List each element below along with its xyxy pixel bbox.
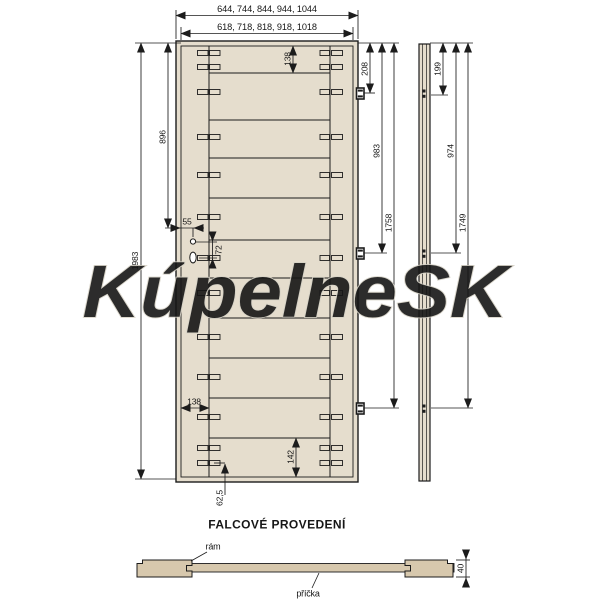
tenon-slot — [198, 135, 209, 140]
tenon-slot — [210, 375, 221, 380]
dim-label-inner-widths: 618, 718, 818, 918, 1018 — [217, 22, 317, 32]
tenon-slot — [210, 446, 221, 451]
tenon-slot — [198, 461, 209, 466]
dim-label-bottom-rail: 142 — [286, 450, 296, 464]
tenon-slot — [210, 173, 221, 178]
tenon-slot — [320, 65, 330, 70]
keyhole-icon — [190, 239, 195, 244]
dim-label-lock-height: 896 — [158, 130, 168, 144]
tenon-slot — [198, 335, 209, 340]
frame-block-right — [405, 560, 453, 577]
frame-block-left — [137, 560, 192, 577]
frame-label: rám — [206, 542, 221, 552]
tenon-slot — [332, 65, 343, 70]
dim-label-bottom-slot: 62,5 — [215, 490, 225, 506]
hinge-dot — [422, 90, 425, 93]
tenon-slot — [332, 461, 343, 466]
dim-label-outer-widths: 644, 744, 844, 944, 1044 — [217, 4, 317, 14]
tenon-slot — [332, 90, 343, 95]
tenon-slot — [320, 135, 330, 140]
hinge-pin — [358, 90, 363, 92]
tenon-slot — [320, 446, 330, 451]
tenon-slot — [210, 51, 221, 56]
dim-label-hinge3: 1758 — [384, 213, 394, 232]
tenon-slot — [210, 135, 221, 140]
dim-label-thickness: 40 — [456, 564, 466, 574]
tenon-slot — [332, 375, 343, 380]
dim-label-side-hinge2: 974 — [446, 144, 456, 158]
tenon-slot — [320, 461, 330, 466]
dim-label-top-rail: 138 — [283, 52, 293, 66]
tenon-slot — [210, 90, 221, 95]
tenon-slot — [332, 415, 343, 420]
tenon-slot — [198, 51, 209, 56]
tenon-slot — [332, 135, 343, 140]
tenon-slot — [198, 415, 209, 420]
hinge-dot — [422, 95, 425, 98]
tenon-slot — [332, 215, 343, 220]
tenon-slot — [320, 173, 330, 178]
hinge-pin — [358, 410, 363, 412]
tenon-slot — [320, 415, 330, 420]
dim-label-side-hinge3: 1749 — [458, 213, 468, 232]
tenon-slot — [332, 51, 343, 56]
tenon-slot — [210, 415, 221, 420]
section-title: FALCOVÉ PROVEDENÍ — [208, 517, 346, 532]
tenon-slot — [210, 65, 221, 70]
hinge-pin — [358, 405, 363, 407]
panel-label: příčka — [296, 589, 320, 599]
tenon-slot — [198, 65, 209, 70]
tenon-slot — [320, 335, 330, 340]
tenon-slot — [198, 215, 209, 220]
cross-section-view — [137, 551, 470, 588]
tenon-slot — [332, 173, 343, 178]
tenon-slot — [210, 215, 221, 220]
tenon-slot — [198, 375, 209, 380]
door-drawing-svg: 644, 744, 844, 944, 1044 618, 718, 818, … — [0, 0, 600, 600]
tenon-slot — [320, 51, 330, 56]
frame-leader-line — [191, 552, 207, 561]
panel-leader-line — [312, 573, 319, 588]
tenon-slot — [198, 446, 209, 451]
hinge-dot — [422, 410, 425, 413]
dim-label-lock-offset: 55 — [182, 217, 192, 227]
tenon-slot — [198, 90, 209, 95]
dim-label-hinge2: 983 — [372, 144, 382, 158]
technical-drawing-canvas: 644, 744, 844, 944, 1044 618, 718, 818, … — [0, 0, 600, 600]
tenon-slot — [320, 215, 330, 220]
hinge-dot — [422, 405, 425, 408]
tenon-slot — [320, 90, 330, 95]
dim-label-side-hinge1: 199 — [433, 62, 443, 76]
dim-label-hinge1: 208 — [360, 62, 370, 76]
tenon-slot — [332, 446, 343, 451]
tenon-slot — [332, 335, 343, 340]
dim-label-side-rail: 138 — [187, 397, 201, 407]
watermark-text: KúpelneSK — [83, 250, 513, 333]
tenon-slot — [198, 173, 209, 178]
tenon-slot — [320, 375, 330, 380]
hinge-pin — [358, 95, 363, 97]
tenon-slot — [210, 335, 221, 340]
